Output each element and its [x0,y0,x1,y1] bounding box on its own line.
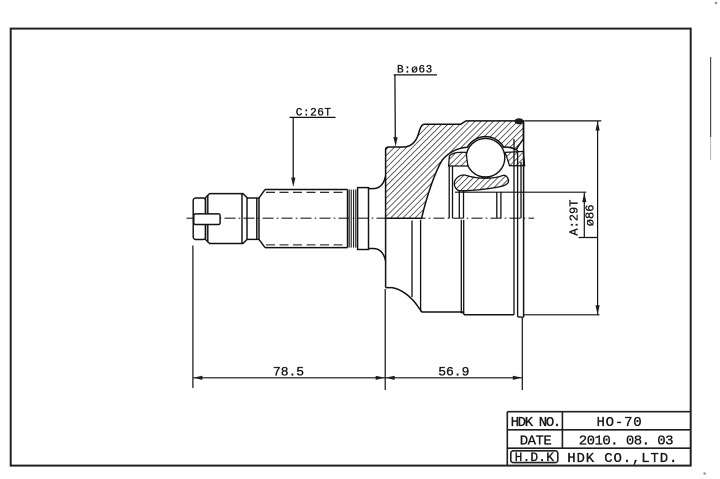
svg-text:56.9: 56.9 [438,364,469,379]
svg-text:HDK CO.,LTD.: HDK CO.,LTD. [567,451,678,467]
svg-text:78.5: 78.5 [273,364,304,379]
svg-text:H.D.K: H.D.K [515,450,555,465]
svg-text:DATE: DATE [520,433,552,449]
svg-text:A:29T: A:29T [568,200,582,236]
svg-text:HO-70: HO-70 [596,415,642,431]
svg-text:HDK NO.: HDK NO. [511,415,560,431]
svg-text:ø86: ø86 [584,205,598,227]
svg-text:2010. 08. 03: 2010. 08. 03 [579,433,673,449]
